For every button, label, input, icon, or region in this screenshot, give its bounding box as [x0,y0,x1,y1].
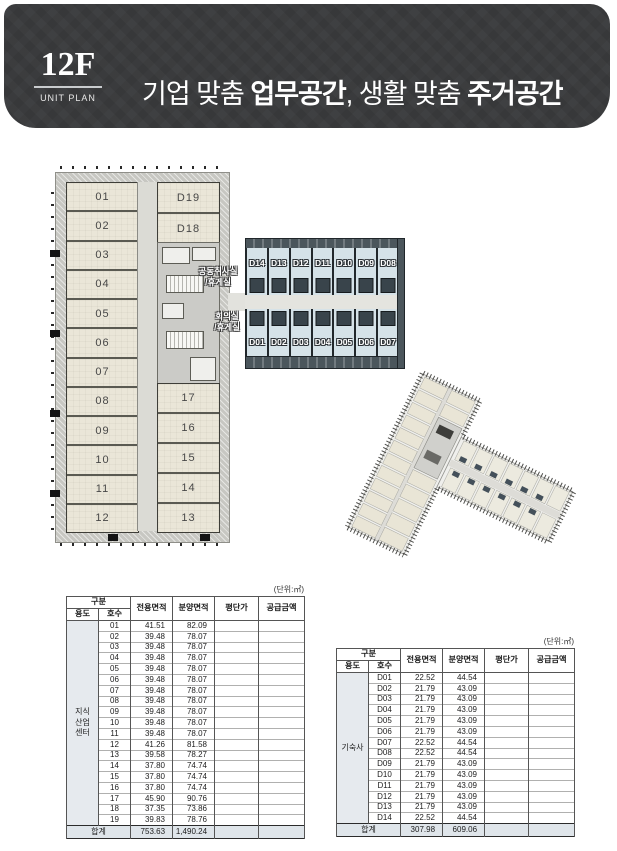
supply-amount-cell [259,728,305,739]
exclusive-area-cell: 22.52 [401,673,443,684]
dorm-row-bottom: D01D02D03D04D05D06D07 [245,309,400,356]
price-per-pyeong-cell [485,737,529,748]
col-header-unit-no: 호수 [369,661,401,673]
table-row: 0839.4878.07 [67,696,305,707]
office-unit: 07 [67,359,138,388]
dorm-unit: D12 [291,248,313,295]
supply-area-cell: 78.07 [173,674,215,685]
unit-no-cell: D03 [369,694,401,705]
supply-area-cell: 78.27 [173,750,215,761]
table-row: D0621.7943.09 [337,726,575,737]
table-row: 1039.4878.07 [67,718,305,729]
unit-no-cell: 05 [99,664,131,675]
title-segment: 업무공간 [250,79,345,109]
price-per-pyeong-cell [215,761,259,772]
col-header-group: 구분 [337,649,401,661]
supply-area-cell: 43.09 [443,759,485,770]
dorm-exterior-wall-end [397,238,405,369]
price-per-pyeong-cell [215,642,259,653]
brochure-page: 12F UNIT PLAN 기업 맞춤 업무공간, 생활 맞춤 주거공간 010… [0,0,617,851]
supply-area-cell: 43.09 [443,716,485,727]
office-unit: 14 [158,474,219,504]
col-header-supply-area: 분양면적 [443,649,485,673]
common-kitchen-label: 공동취사실 /휴게실 [178,266,258,287]
price-per-pyeong-cell [485,780,529,791]
col-header-price-per-pyeong: 평단가 [215,597,259,621]
dimension-ticks-top [60,166,223,169]
table-row: 0939.4878.07 [67,707,305,718]
unit-no-cell: 09 [99,707,131,718]
total-row: 합계307.98609.06 [337,824,575,837]
unit-note: (단위:㎡) [470,636,574,647]
unit-no-cell: D08 [369,748,401,759]
unit-no-cell: 17 [99,793,131,804]
dorm-unit: D06 [356,309,378,356]
dorm-unit: D02 [269,309,291,356]
unit-no-cell: D06 [369,726,401,737]
dorm-unit: D05 [334,309,356,356]
total-exclusive-area-cell: 753.63 [131,826,173,839]
dorm-row-top: D14D13D12D11D10D09D08 [245,248,400,295]
table-row: 0239.4878.07 [67,631,305,642]
table-row: D1321.7943.09 [337,802,575,813]
table-row: 1537.8074.74 [67,772,305,783]
total-amount-cell [259,826,305,839]
table-row: 기숙사D0122.5244.54 [337,673,575,684]
dimension-ticks-left [51,182,54,530]
table-row: D0822.5244.54 [337,748,575,759]
supply-amount-cell [529,802,575,813]
exclusive-area-cell: 22.52 [401,748,443,759]
exclusive-area-cell: 39.48 [131,642,173,653]
exclusive-area-cell: 21.79 [401,726,443,737]
price-per-pyeong-cell [215,674,259,685]
office-unit: 04 [67,271,138,300]
table-row: D0421.7943.09 [337,705,575,716]
exclusive-area-cell: 39.48 [131,653,173,664]
common-kitchen-label-line1: 공동취사실 [178,266,258,277]
price-per-pyeong-cell [215,750,259,761]
title-segment: 주거공간 [467,79,562,109]
price-per-pyeong-cell [215,718,259,729]
table-row: 1139.4878.07 [67,728,305,739]
supply-amount-cell [259,685,305,696]
exclusive-area-cell: 41.51 [131,621,173,632]
unit-no-cell: 03 [99,642,131,653]
stairs-lower [166,331,204,349]
supply-amount-cell [259,804,305,815]
exclusive-area-cell: 39.48 [131,631,173,642]
door-marker [108,534,118,541]
unit-no-cell: 18 [99,804,131,815]
table-row: 0739.4878.07 [67,685,305,696]
supply-amount-cell [259,631,305,642]
unit-no-cell: 01 [99,621,131,632]
usage-category-cell: 기숙사 [337,673,369,824]
exclusive-area-cell: 21.79 [401,759,443,770]
price-per-pyeong-cell [215,772,259,783]
floor-number: 12F [32,48,104,82]
unit-no-cell: 07 [99,685,131,696]
table-row: 1745.9090.76 [67,793,305,804]
unit-no-cell: D13 [369,802,401,813]
floor-badge: 12F UNIT PLAN [32,48,104,103]
exclusive-area-cell: 39.48 [131,718,173,729]
office-unit: 12 [67,505,138,532]
exclusive-area-cell: 39.48 [131,674,173,685]
dormitory-area-table: 구분 전용면적 분양면적 평단가 공급금액 용도 호수 기숙사D0122.524… [336,648,575,837]
office-unit: 11 [67,476,138,505]
title-segment: , 생활 맞춤 [346,79,467,109]
supply-amount-cell [259,761,305,772]
table-row: D0321.7943.09 [337,694,575,705]
total-supply-area-cell: 1,490.24 [173,826,215,839]
table-row: D0921.7943.09 [337,759,575,770]
supply-amount-cell [259,815,305,826]
supply-amount-cell [259,664,305,675]
unit-no-cell: 10 [99,718,131,729]
dorm-units-in-tower: D19D18 [157,182,220,244]
dorm-unit: D10 [334,248,356,295]
office-unit: 08 [67,388,138,417]
supply-area-cell: 44.54 [443,673,485,684]
dormitory-wing: D14D13D12D11D10D09D08 D01D02D03D04D05D06… [245,238,403,368]
table-row: D1021.7943.09 [337,770,575,781]
supply-area-cell: 44.54 [443,748,485,759]
office-unit: 10 [67,446,138,475]
price-per-pyeong-cell [215,621,259,632]
office-unit: 09 [67,417,138,446]
table-row: 1939.8378.76 [67,815,305,826]
supply-area-cell: 44.54 [443,813,485,824]
door-marker [50,410,60,417]
unit-no-cell: 11 [99,728,131,739]
price-per-pyeong-cell [215,707,259,718]
unit-no-cell: D11 [369,780,401,791]
unit-no-cell: 16 [99,782,131,793]
supply-area-cell: 78.07 [173,653,215,664]
price-per-pyeong-cell [215,793,259,804]
supply-area-cell: 43.09 [443,780,485,791]
office-units-right-column: 1716151413 [157,383,220,533]
price-per-pyeong-cell [485,770,529,781]
supply-amount-cell [259,642,305,653]
supply-area-cell: 78.76 [173,815,215,826]
supply-amount-cell [529,791,575,802]
col-header-usage: 용도 [337,661,369,673]
exclusive-area-cell: 21.79 [401,683,443,694]
exclusive-area-cell: 37.35 [131,804,173,815]
price-per-pyeong-cell [485,726,529,737]
table-row: 0539.4878.07 [67,664,305,675]
office-units-left-column: 010203040506070809101112 [66,182,139,533]
unit-no-cell: 15 [99,772,131,783]
supply-area-cell: 78.07 [173,664,215,675]
dorm-unit: D09 [356,248,378,295]
exclusive-area-cell: 41.26 [131,739,173,750]
office-unit: 13 [158,504,219,532]
door-marker [50,330,60,337]
supply-amount-cell [259,782,305,793]
col-header-group: 구분 [67,597,131,609]
supply-area-cell: 43.09 [443,802,485,813]
supply-amount-cell [529,673,575,684]
price-per-pyeong-cell [215,653,259,664]
exclusive-area-cell: 39.48 [131,685,173,696]
price-per-pyeong-cell [485,694,529,705]
table-row: D1221.7943.09 [337,791,575,802]
supply-amount-cell [259,750,305,761]
table-row: 0439.4878.07 [67,653,305,664]
exclusive-area-cell: 37.80 [131,761,173,772]
supply-amount-cell [529,770,575,781]
door-marker [50,250,60,257]
price-per-pyeong-cell [485,748,529,759]
price-per-pyeong-cell [485,716,529,727]
supply-amount-cell [259,621,305,632]
supply-amount-cell [259,674,305,685]
col-header-exclusive-area: 전용면적 [131,597,173,621]
col-header-supply-amount: 공급금액 [259,597,305,621]
supply-amount-cell [529,748,575,759]
table-row: 0639.4878.07 [67,674,305,685]
door-marker [50,490,60,497]
price-per-pyeong-cell [485,683,529,694]
supply-area-cell: 43.09 [443,705,485,716]
corridor-vertical [137,182,159,531]
dorm-unit: D11 [313,248,335,295]
dorm-unit: D04 [313,309,335,356]
unit-no-cell: 04 [99,653,131,664]
table-row: 1637.8074.74 [67,782,305,793]
supply-area-cell: 74.74 [173,782,215,793]
title-segment: 기업 맞춤 [142,79,250,109]
office-unit: 01 [67,183,138,212]
exclusive-area-cell: 21.79 [401,802,443,813]
total-row: 합계753.631,490.24 [67,826,305,839]
supply-area-cell: 78.07 [173,707,215,718]
price-per-pyeong-cell [215,685,259,696]
supply-area-cell: 43.09 [443,726,485,737]
unit-no-cell: 08 [99,696,131,707]
supply-area-cell: 82.09 [173,621,215,632]
office-unit: 03 [67,242,138,271]
total-label-cell: 합계 [337,824,401,837]
exclusive-area-cell: 39.48 [131,707,173,718]
unit-no-cell: 13 [99,750,131,761]
price-per-pyeong-cell [215,815,259,826]
supply-amount-cell [529,813,575,824]
exclusive-area-cell: 21.79 [401,791,443,802]
supply-amount-cell [529,759,575,770]
table-row: 1339.5878.27 [67,750,305,761]
price-per-pyeong-cell [485,791,529,802]
supply-amount-cell [529,683,575,694]
unit-no-cell: 12 [99,739,131,750]
supply-area-cell: 73.86 [173,804,215,815]
meeting-room-label-line1: 회의실 [187,311,267,322]
office-unit: 16 [158,414,219,444]
total-exclusive-area-cell: 307.98 [401,824,443,837]
unit-no-cell: D02 [369,683,401,694]
table-row: D1422.5244.54 [337,813,575,824]
unit-plan-label: UNIT PLAN [32,93,104,103]
supply-amount-cell [529,716,575,727]
table-row: D0722.5244.54 [337,737,575,748]
col-header-supply-area: 분양면적 [173,597,215,621]
floor-underline [34,86,102,88]
supply-area-cell: 78.07 [173,696,215,707]
supply-area-cell: 78.07 [173,728,215,739]
exclusive-area-cell: 21.79 [401,780,443,791]
axonometric-floor-view [328,366,615,562]
supply-amount-cell [529,780,575,791]
exclusive-area-cell: 39.83 [131,815,173,826]
table-row: D1121.7943.09 [337,780,575,791]
unit-no-cell: D09 [369,759,401,770]
table-row: 0339.4878.07 [67,642,305,653]
exclusive-area-cell: 45.90 [131,793,173,804]
supply-amount-cell [529,726,575,737]
supply-area-cell: 43.09 [443,694,485,705]
col-header-unit-no: 호수 [99,609,131,621]
supply-area-cell: 90.76 [173,793,215,804]
supply-area-cell: 44.54 [443,737,485,748]
table-row: 1241.2681.58 [67,739,305,750]
table-row: D0221.7943.09 [337,683,575,694]
price-per-pyeong-cell [215,696,259,707]
exclusive-area-cell: 39.58 [131,750,173,761]
exclusive-area-cell: 21.79 [401,705,443,716]
supply-amount-cell [259,793,305,804]
col-header-price-per-pyeong: 평단가 [485,649,529,673]
table-row: 1437.8074.74 [67,761,305,772]
supply-area-cell: 74.74 [173,772,215,783]
supply-amount-cell [259,707,305,718]
exclusive-area-cell: 21.79 [401,716,443,727]
dorm-corridor [245,295,398,309]
price-per-pyeong-cell [485,802,529,813]
supply-area-cell: 43.09 [443,791,485,802]
supply-amount-cell [259,696,305,707]
exclusive-area-cell: 22.52 [401,737,443,748]
dimension-ticks-bottom [60,543,223,546]
unit-no-cell: D01 [369,673,401,684]
price-per-pyeong-cell [215,664,259,675]
price-per-pyeong-cell [215,728,259,739]
exclusive-area-cell: 22.52 [401,813,443,824]
dorm-unit: D13 [269,248,291,295]
supply-area-cell: 78.07 [173,718,215,729]
office-unit: 06 [67,329,138,358]
price-per-pyeong-cell [485,705,529,716]
price-per-pyeong-cell [215,804,259,815]
total-label-cell: 합계 [67,826,131,839]
supply-amount-cell [529,705,575,716]
utility-box-lower [190,357,216,381]
price-per-pyeong-cell [215,782,259,793]
door-marker [200,534,210,541]
page-title: 기업 맞춤 업무공간, 생활 맞춤 주거공간 [142,72,563,111]
dorm-unit: D03 [291,309,313,356]
elevator-box [162,247,190,264]
supply-area-cell: 81.58 [173,739,215,750]
supply-amount-cell [529,737,575,748]
usage-category-cell: 지식산업센터 [67,621,99,826]
unit-no-cell: D07 [369,737,401,748]
table-row: 지식산업센터0141.5182.09 [67,621,305,632]
exclusive-area-cell: 21.79 [401,770,443,781]
office-unit: 15 [158,444,219,474]
unit-no-cell: 02 [99,631,131,642]
price-per-pyeong-cell [215,631,259,642]
exclusive-area-cell: 39.48 [131,664,173,675]
supply-amount-cell [259,653,305,664]
supply-amount-cell [259,739,305,750]
total-amount-cell [529,824,575,837]
utility-box [192,247,216,261]
dorm-unit: D18 [158,214,219,243]
exclusive-area-cell: 21.79 [401,694,443,705]
dorm-unit: D19 [158,183,219,214]
unit-no-cell: 06 [99,674,131,685]
unit-no-cell: D14 [369,813,401,824]
total-price-cell [215,826,259,839]
table-row: D0521.7943.09 [337,716,575,727]
unit-no-cell: 14 [99,761,131,772]
meeting-room-label: 회의실 /휴게실 [187,311,267,332]
common-kitchen-label-line2: /휴게실 [178,277,258,288]
exclusive-area-cell: 37.80 [131,782,173,793]
unit-no-cell: D12 [369,791,401,802]
supply-amount-cell [259,718,305,729]
unit-no-cell: D10 [369,770,401,781]
toilet-box [162,303,184,319]
col-header-exclusive-area: 전용면적 [401,649,443,673]
exclusive-area-cell: 39.48 [131,728,173,739]
col-header-usage: 용도 [67,609,99,621]
total-price-cell [485,824,529,837]
price-per-pyeong-cell [485,673,529,684]
supply-amount-cell [529,694,575,705]
total-supply-area-cell: 609.06 [443,824,485,837]
price-per-pyeong-cell [215,739,259,750]
unit-no-cell: D05 [369,716,401,727]
unit-note: (단위:㎡) [200,584,304,595]
price-per-pyeong-cell [485,759,529,770]
office-area-table: 구분 전용면적 분양면적 평단가 공급금액 용도 호수 지식산업센터0141.5… [66,596,305,839]
header-banner: 12F UNIT PLAN 기업 맞춤 업무공간, 생활 맞춤 주거공간 [4,4,610,128]
supply-area-cell: 78.07 [173,642,215,653]
exclusive-area-cell: 37.80 [131,772,173,783]
supply-area-cell: 78.07 [173,685,215,696]
office-unit: 05 [67,300,138,329]
office-unit: 02 [67,212,138,241]
supply-area-cell: 74.74 [173,761,215,772]
table-row: 1837.3573.86 [67,804,305,815]
unit-no-cell: D04 [369,705,401,716]
col-header-supply-amount: 공급금액 [529,649,575,673]
unit-no-cell: 19 [99,815,131,826]
price-per-pyeong-cell [485,813,529,824]
supply-area-cell: 43.09 [443,770,485,781]
meeting-room-label-line2: /휴게실 [187,322,267,333]
supply-area-cell: 78.07 [173,631,215,642]
supply-area-cell: 43.09 [443,683,485,694]
supply-amount-cell [259,772,305,783]
connecting-corridor [228,293,245,311]
office-unit: 17 [158,384,219,414]
